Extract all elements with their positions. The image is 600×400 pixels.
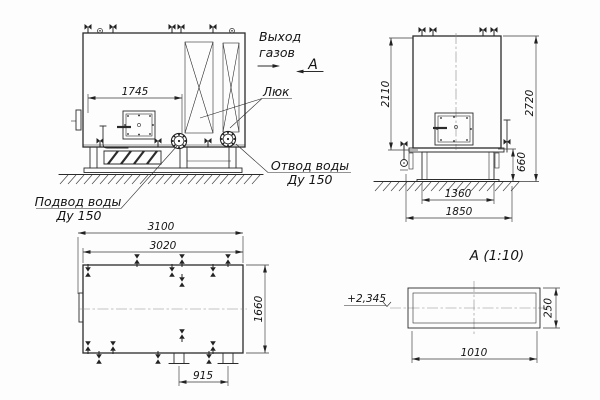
dim-1660: 1660: [246, 265, 269, 353]
dim-1010: 1010: [412, 331, 537, 363]
gas-outlet-label-line2: газов: [259, 45, 295, 60]
technical-drawing: 1745 Выход газов А Люк Отвод воды Ду 150: [0, 0, 600, 400]
front-hatch-door: [117, 111, 155, 139]
gas-outlet-label-line1: Выход: [259, 29, 301, 44]
valve-icon: [210, 264, 216, 277]
dim-660: 660: [498, 149, 528, 182]
dim-text-915: 915: [193, 370, 213, 382]
label-gas-outlet: Выход газов: [258, 29, 301, 68]
valve-icon: [85, 264, 91, 277]
valve-icon: [430, 27, 437, 36]
plan-view: 3100 3020 1660 915: [78, 221, 269, 386]
side-left-fitting: [400, 141, 413, 170]
dim-250: 250: [543, 288, 561, 328]
label-hatch: Люк: [200, 85, 292, 128]
plan-body: [79, 265, 247, 353]
valve-icon: [205, 138, 212, 147]
ladder-icon: [104, 151, 161, 164]
dim-3100: 3100: [78, 221, 243, 294]
water-supply-flange-icon: [171, 133, 186, 148]
dim-text-2720: 2720: [524, 89, 536, 116]
valve-icon: [480, 27, 487, 36]
dim-915: 915: [179, 366, 228, 386]
dim-text-1360: 1360: [445, 188, 472, 200]
dim-text-660: 660: [516, 152, 528, 172]
dim-3020: 3020: [83, 240, 243, 263]
boiler-side-body: [409, 33, 504, 182]
valve-icon: [169, 264, 175, 277]
dim-text-1010: 1010: [461, 347, 488, 359]
valve-icon: [401, 141, 408, 150]
side-view: 2110 2720 660 1360: [374, 27, 539, 222]
dim-1745: 1745: [88, 86, 182, 134]
section-view: А (1:10) +2,345 1010 250: [344, 248, 560, 363]
water-supply-label-line1: Подвод воды: [35, 194, 122, 209]
label-water-outlet: Отвод воды Ду 150: [236, 144, 351, 187]
gas-duct-windows: [185, 42, 239, 133]
water-outlet-label-line1: Отвод воды: [271, 158, 349, 173]
valve-icon: [85, 341, 91, 354]
valve-icon: [169, 24, 176, 33]
drawing-canvas: 1745 Выход газов А Люк Отвод воды Ду 150: [0, 0, 600, 400]
ground-front: [59, 175, 263, 185]
label-section-arrow: А: [296, 57, 323, 73]
front-top-valve-icons: [85, 24, 235, 33]
valve-icon: [97, 138, 104, 147]
elevation-text: +2,345: [347, 293, 386, 305]
section-title: А (1:10): [469, 248, 524, 264]
valve-icon: [419, 27, 426, 36]
water-outlet-flange-icon: [220, 131, 235, 146]
dim-text-1745: 1745: [122, 86, 149, 98]
valve-icon: [210, 24, 217, 33]
flow-arrow-icon: [273, 64, 281, 68]
section-letter: А: [307, 57, 318, 73]
dim-text-2110: 2110: [380, 80, 392, 107]
valve-icon: [179, 329, 185, 342]
boiler-front-body: [71, 33, 245, 147]
valve-icon: [210, 341, 216, 354]
dim-2110: 2110: [380, 38, 418, 150]
dim-text-250: 250: [543, 298, 555, 318]
view-direction-arrow-icon: [296, 70, 304, 74]
dim-text-3100: 3100: [148, 221, 175, 233]
valve-icon: [110, 341, 116, 354]
label-water-supply: Подвод воды Ду 150: [35, 146, 177, 223]
dim-text-1660: 1660: [253, 295, 265, 322]
hatch-label: Люк: [262, 85, 290, 99]
water-supply-label-line2: Ду 150: [56, 208, 102, 223]
side-top-valve-icons: [419, 27, 498, 36]
water-outlet-label-line2: Ду 150: [287, 172, 333, 187]
valve-icon: [85, 24, 92, 33]
elevation-mark: +2,345: [344, 293, 391, 307]
valve-icon: [178, 24, 185, 33]
valve-icon: [179, 274, 185, 287]
section-duct: [390, 281, 549, 335]
dim-text-1850: 1850: [446, 206, 473, 218]
plan-duct-stubs: [169, 353, 238, 364]
valve-icon: [491, 27, 498, 36]
valve-icon: [155, 138, 162, 147]
valve-icon: [110, 24, 117, 33]
front-view: 1745 Выход газов А Люк Отвод воды Ду 150: [35, 24, 351, 223]
support-frame-front: [84, 126, 242, 173]
dim-text-3020: 3020: [150, 240, 177, 252]
side-right-fitting: [495, 120, 511, 168]
side-hatch-door: [433, 113, 473, 145]
